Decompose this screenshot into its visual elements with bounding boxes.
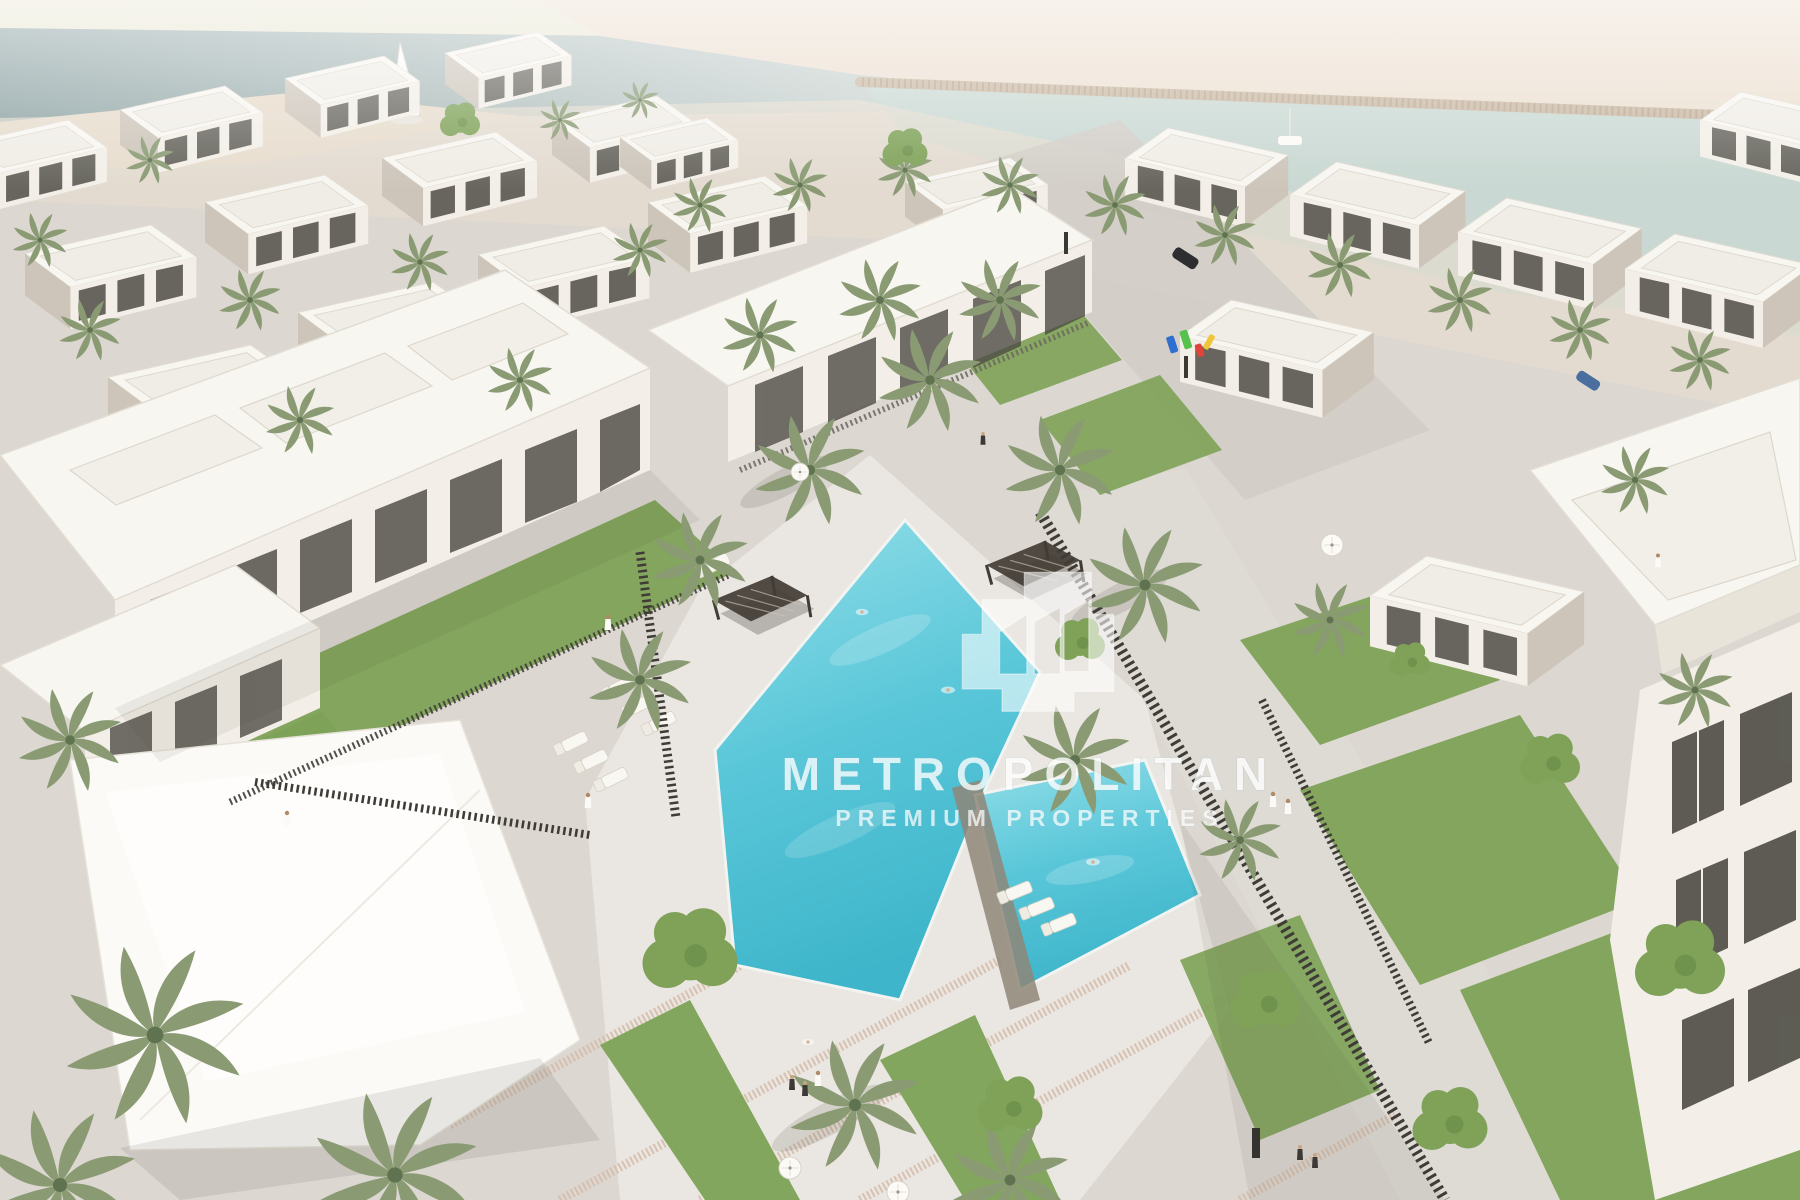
signage-bollard [1252, 1128, 1260, 1158]
watermark-brand-text: METROPOLITAN [782, 748, 1279, 800]
render-scene: METROPOLITAN PREMIUM PROPERTIES [0, 0, 1800, 1200]
patio-umbrella [791, 463, 809, 481]
atmospheric-haze [0, 0, 1800, 190]
patio-umbrella [779, 1157, 801, 1179]
patio-umbrella [1321, 534, 1343, 556]
aerial-property-render: METROPOLITAN PREMIUM PROPERTIES [0, 0, 1800, 1200]
patio-umbrella [887, 1181, 909, 1200]
street-lamp [1184, 356, 1188, 378]
watermark-tagline-text: PREMIUM PROPERTIES [835, 805, 1224, 831]
street-lamp [1064, 232, 1068, 254]
